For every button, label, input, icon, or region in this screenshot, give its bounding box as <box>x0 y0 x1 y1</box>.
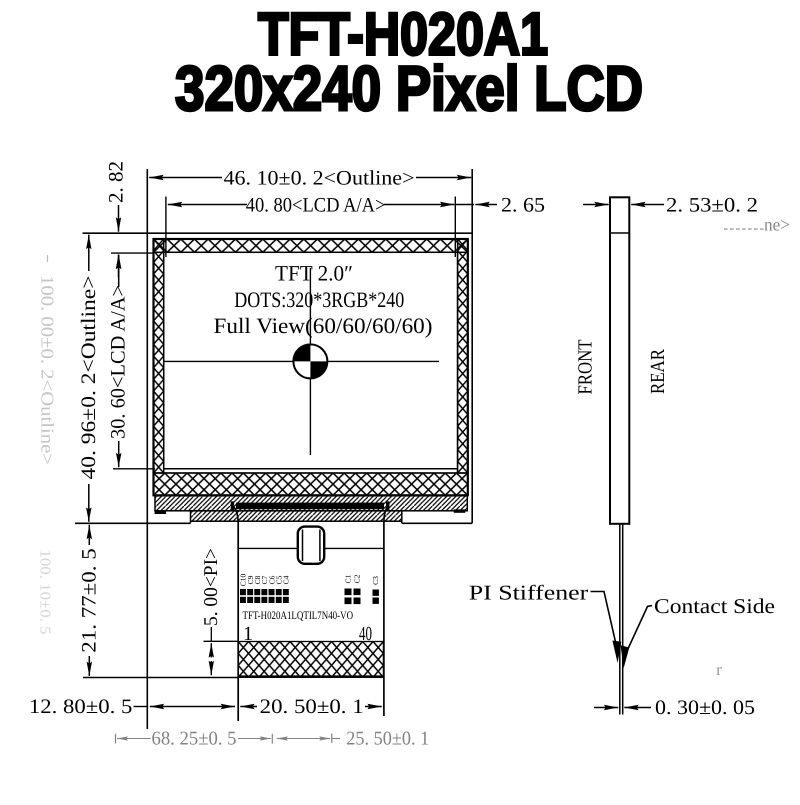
svg-text:40. 96±0. 2<Outline>: 40. 96±0. 2<Outline> <box>78 276 100 480</box>
svg-text:100. 10±0. 5: 100. 10±0. 5 <box>37 550 53 635</box>
svg-text:C1: C1 <box>344 574 353 583</box>
svg-text:20. 50±0. 1: 20. 50±0. 1 <box>260 696 364 718</box>
svg-text:TFT 2.0″: TFT 2.0″ <box>275 261 353 286</box>
svg-text:REAR: REAR <box>647 348 669 394</box>
svg-text:25. 50±0. 1: 25. 50±0. 1 <box>346 729 429 750</box>
svg-text:Full View(60/60/60/60): Full View(60/60/60/60) <box>214 313 433 338</box>
svg-text:FRONT: FRONT <box>575 340 597 395</box>
svg-text:r: r <box>716 660 722 679</box>
svg-text:Contact Side: Contact Side <box>654 594 775 618</box>
svg-text:2. 53±0. 2: 2. 53±0. 2 <box>666 194 758 216</box>
svg-text:21. 77±0. 5: 21. 77±0. 5 <box>78 548 100 653</box>
svg-text:C4: C4 <box>282 575 291 584</box>
svg-text:0. 30±0. 05: 0. 30±0. 05 <box>655 697 755 719</box>
svg-text:PI Stiffener: PI Stiffener <box>469 580 589 604</box>
svg-text:5. 00<PI>: 5. 00<PI> <box>201 548 222 626</box>
svg-text:TFT-H020A1LQTIL7N40-VO: TFT-H020A1LQTIL7N40-VO <box>243 610 354 622</box>
svg-text:C2: C2 <box>353 574 362 583</box>
svg-text:320x240 Pixel LCD: 320x240 Pixel LCD <box>175 54 643 124</box>
svg-text:DOTS:320*3RGB*240: DOTS:320*3RGB*240 <box>234 287 404 312</box>
svg-text:30. 60<LCD A/A>: 30. 60<LCD A/A> <box>108 285 130 439</box>
svg-text:2. 82: 2. 82 <box>106 161 128 203</box>
svg-text:ne>: ne> <box>764 215 790 235</box>
svg-text:2. 65: 2. 65 <box>501 194 545 216</box>
svg-text:40. 80<LCD A/A>: 40. 80<LCD A/A> <box>246 194 386 216</box>
svg-text:12. 80±0. 5: 12. 80±0. 5 <box>29 696 133 718</box>
svg-text:68. 25±0. 5: 68. 25±0. 5 <box>152 729 237 750</box>
svg-text:C3: C3 <box>371 576 380 585</box>
svg-text:46. 10±0. 2<Outline>: 46. 10±0. 2<Outline> <box>224 167 415 189</box>
svg-text:100. 00±0. 2<Outline>: 100. 00±0. 2<Outline> <box>38 275 58 465</box>
